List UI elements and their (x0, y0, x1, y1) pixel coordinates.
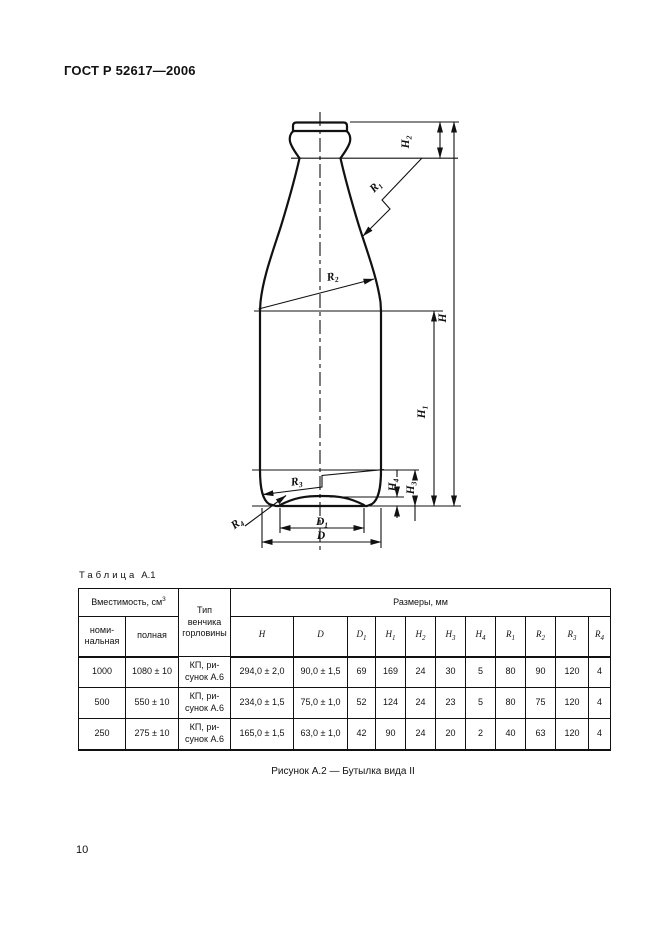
cell: 169 (376, 657, 406, 688)
col-header-finish-type: Тип венчика горловины (179, 589, 231, 657)
cell: КП, ри- сунок А.6 (179, 719, 231, 750)
dim-label-h4: H4 (387, 478, 401, 492)
cell: 275 ± 10 (126, 719, 179, 750)
dimension-h1: H1 (416, 311, 434, 506)
dimension-h4: H4 (387, 470, 401, 518)
cell: 30 (436, 657, 466, 688)
col-header-r4: R4 (589, 617, 611, 657)
col-header-h: H (231, 617, 294, 657)
cell: 90 (526, 657, 556, 688)
document-page: ГОСТ Р 52617—2006 (0, 0, 661, 936)
dim-label-h: H (437, 312, 449, 323)
standard-code: ГОСТ Р 52617—2006 (64, 63, 196, 78)
col-header-h1: H1 (376, 617, 406, 657)
dim-label-d: D (316, 530, 326, 542)
cell: КП, ри- сунок А.6 (179, 657, 231, 688)
table-row: 250 275 ± 10 КП, ри- сунок А.6 165,0 ± 1… (79, 719, 611, 750)
cell: 63,0 ± 1,0 (294, 719, 348, 750)
cell: 90,0 ± 1,5 (294, 657, 348, 688)
cell: 80 (496, 657, 526, 688)
leader-r1: R1 (363, 158, 422, 236)
dimensions-table: Вместимость, см3 Тип венчика горловины Р… (78, 588, 611, 751)
dimension-h2: H2 (400, 122, 440, 158)
table-group-header-row: Вместимость, см3 Тип венчика горловины Р… (79, 589, 611, 617)
cell: 120 (556, 719, 589, 750)
col-header-r3: R3 (556, 617, 589, 657)
col-header-h2: H2 (406, 617, 436, 657)
cell: 124 (376, 688, 406, 719)
cell: 1000 (79, 657, 126, 688)
cell: 5 (466, 657, 496, 688)
figure-caption: Рисунок А.2 — Бутылка вида II (78, 766, 608, 777)
table-row: 1000 1080 ± 10 КП, ри- сунок А.6 294,0 ±… (79, 657, 611, 688)
dim-label-h3: H3 (405, 481, 419, 495)
dim-label-r1: R1 (367, 179, 385, 197)
cell: 1080 ± 10 (126, 657, 179, 688)
dim-label-r4: R4 (228, 515, 246, 533)
cell: 24 (406, 719, 436, 750)
cell: 69 (348, 657, 376, 688)
table-label-number: А.1 (141, 570, 155, 581)
cell: 24 (406, 657, 436, 688)
col-header-h4: H4 (466, 617, 496, 657)
col-header-d: D (294, 617, 348, 657)
dim-label-d1: D1 (315, 516, 328, 530)
table-sub-header-row: номи- нальная полная H D D1 H1 H2 H3 H4 … (79, 617, 611, 657)
col-header-full: полная (126, 617, 179, 657)
col-group-capacity: Вместимость, см3 (79, 589, 179, 617)
cell: 294,0 ± 2,0 (231, 657, 294, 688)
leader-r2: R2 (259, 270, 375, 309)
dim-label-h1: H1 (416, 406, 430, 420)
col-header-d1: D1 (348, 617, 376, 657)
extension-lines (252, 122, 461, 548)
cell: 90 (376, 719, 406, 750)
table-label: ТаблицаА.1 (79, 570, 156, 581)
table-label-word: Таблица (79, 570, 137, 581)
cell: 42 (348, 719, 376, 750)
cell: 4 (589, 719, 611, 750)
cell: 120 (556, 688, 589, 719)
cell: 2 (466, 719, 496, 750)
dimension-h: H (437, 122, 454, 506)
bottle-figure-drawing: H2 H H1 H3 H4 D1 (220, 105, 470, 565)
col-group-dimensions: Размеры, мм (231, 589, 611, 617)
page-number: 10 (76, 844, 88, 856)
cell: 4 (589, 688, 611, 719)
cell: 4 (589, 657, 611, 688)
cell: 80 (496, 688, 526, 719)
cell: 63 (526, 719, 556, 750)
cell: 120 (556, 657, 589, 688)
col-header-r1: R1 (496, 617, 526, 657)
leader-r3: R3 (263, 470, 384, 495)
col-header-nominal: номи- нальная (79, 617, 126, 657)
cell: 165,0 ± 1,5 (231, 719, 294, 750)
cell: 20 (436, 719, 466, 750)
cell: 75,0 ± 1,0 (294, 688, 348, 719)
cell: 234,0 ± 1,5 (231, 688, 294, 719)
col-header-h3: H3 (436, 617, 466, 657)
cell: 550 ± 10 (126, 688, 179, 719)
cell: 500 (79, 688, 126, 719)
cell: 5 (466, 688, 496, 719)
cell: 250 (79, 719, 126, 750)
cell: 40 (496, 719, 526, 750)
dimension-d1: D1 (280, 516, 364, 530)
dim-label-r2: R2 (325, 270, 340, 285)
cell: 52 (348, 688, 376, 719)
table-row: 500 550 ± 10 КП, ри- сунок А.6 234,0 ± 1… (79, 688, 611, 719)
dim-label-h2: H2 (400, 135, 414, 149)
cell: 23 (436, 688, 466, 719)
leader-r4: R4 (228, 496, 286, 534)
cell: 75 (526, 688, 556, 719)
col-header-r2: R2 (526, 617, 556, 657)
cell: 24 (406, 688, 436, 719)
cell: КП, ри- сунок А.6 (179, 688, 231, 719)
dim-label-r3: R3 (289, 475, 303, 490)
dimension-h3: H3 (405, 470, 419, 521)
